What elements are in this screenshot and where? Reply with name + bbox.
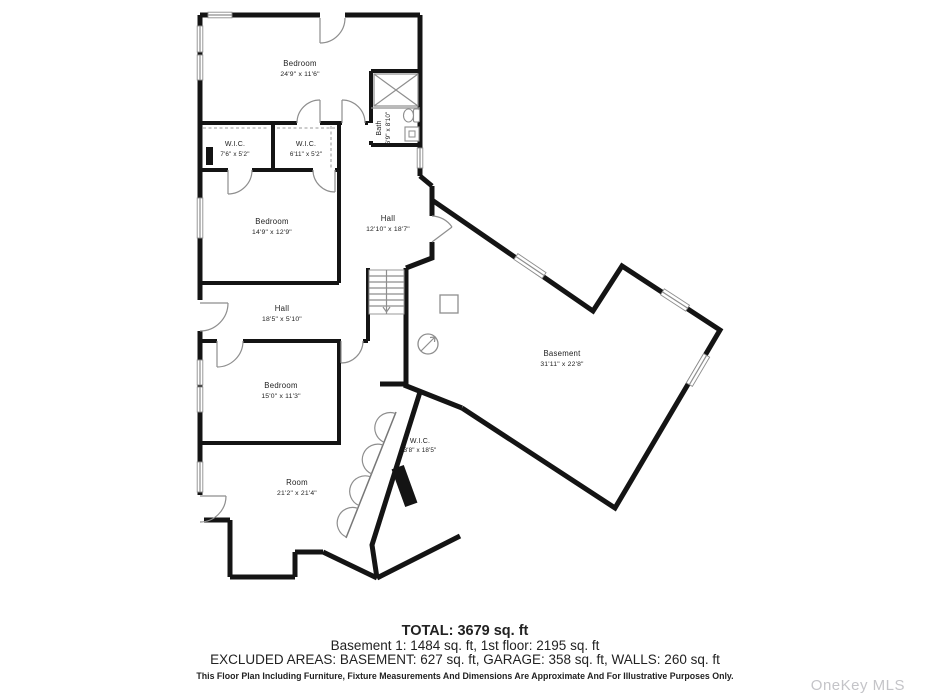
label-bedroom-mid-dims: 14'9" x 12'9" (252, 229, 292, 236)
label-bedroom-low-dims: 15'0" x 11'3" (261, 393, 301, 400)
toilet (404, 109, 420, 122)
label-bedroom-top-name: Bedroom (283, 59, 316, 68)
label-basement-name: Basement (543, 349, 581, 358)
total-area-text: TOTAL: 3679 sq. ft (402, 623, 529, 639)
excluded-areas-text: EXCLUDED AREAS: BASEMENT: 627 sq. ft, GA… (210, 652, 720, 667)
wall-openings (196, 11, 375, 523)
label-bath-name: Bath (376, 120, 383, 135)
label-hall-upper-dims: 12'10" x 18'7" (366, 226, 410, 233)
window (661, 289, 690, 311)
column (440, 295, 458, 313)
window (417, 148, 423, 168)
door-arc (341, 341, 363, 363)
door-arc (320, 18, 345, 43)
label-hall-lower-dims: 18'5" x 5'10" (262, 316, 302, 323)
label-hall-lower-name: Hall (275, 304, 289, 313)
door-arc (297, 100, 320, 123)
window (686, 354, 709, 387)
door-arc (313, 170, 335, 192)
label-bedroom-low-name: Bedroom (264, 381, 297, 390)
window (197, 26, 203, 52)
window (197, 360, 203, 385)
label-wic-left-name: W.I.C. (225, 141, 245, 148)
sink (405, 127, 419, 141)
label-bedroom-top-dims: 24'9" x 11'6" (280, 71, 320, 78)
door-arc (200, 303, 228, 331)
label-bath-dims: 6'9" x 8'10" (385, 112, 392, 145)
label-bedroom-mid-name: Bedroom (255, 217, 288, 226)
window (514, 254, 546, 279)
label-hall-upper-name: Hall (381, 214, 395, 223)
garage-door (392, 465, 418, 507)
windows (197, 12, 709, 492)
door-arc (228, 170, 252, 194)
floor-areas-text: Basement 1: 1484 sq. ft, 1st floor: 2195… (331, 638, 600, 653)
disclaimer-text: This Floor Plan Including Furniture, Fix… (196, 671, 733, 681)
door-arc (217, 341, 243, 367)
window (197, 198, 203, 238)
electrical-panel-icon (418, 334, 438, 354)
basement-symbols (418, 295, 458, 354)
window (197, 462, 203, 492)
floor-plan: Bedroom 24'9" x 11'6" W.I.C. 7'6" x 5'2"… (0, 0, 930, 697)
closet-fixture (206, 147, 213, 165)
window (197, 55, 203, 80)
label-room-dims: 21'2" x 21'4" (277, 490, 317, 497)
label-wic-corridor-name: W.I.C. (410, 438, 430, 445)
door-arc (342, 100, 365, 123)
label-wic-left-dims: 7'6" x 5'2" (220, 151, 249, 158)
label-wic-right-name: W.I.C. (296, 141, 316, 148)
label-wic-corridor-dims: 3'8" x 18'5" (404, 447, 437, 454)
watermark: OneKey MLS (811, 677, 905, 694)
window (208, 12, 232, 18)
door-arc (432, 216, 452, 242)
shower (371, 74, 420, 108)
label-wic-right-dims: 6'11" x 5'2" (290, 151, 322, 158)
label-basement-dims: 31'11" x 22'8" (540, 361, 584, 368)
window (197, 387, 203, 412)
stairs (369, 270, 404, 314)
floor-plan-page: Bedroom 24'9" x 11'6" W.I.C. 7'6" x 5'2"… (0, 0, 930, 697)
footer: TOTAL: 3679 sq. ft Basement 1: 1484 sq. … (196, 623, 733, 681)
label-room-name: Room (286, 478, 308, 487)
